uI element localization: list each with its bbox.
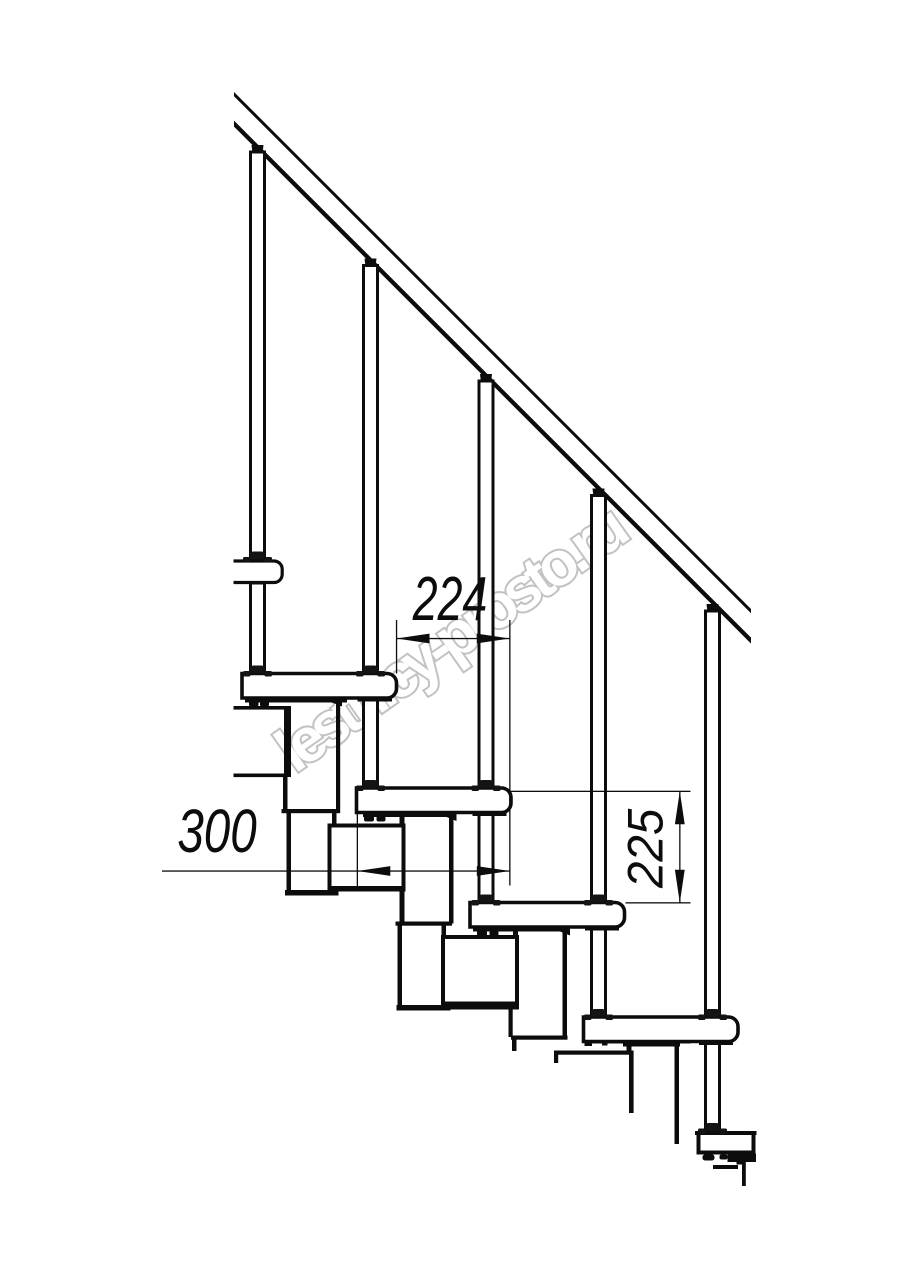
svg-text:225: 225: [618, 808, 673, 889]
svg-text:300: 300: [177, 796, 256, 865]
svg-text:224: 224: [412, 565, 487, 634]
svg-text:lestnicy-prosto.ru: lestnicy-prosto.ru: [263, 494, 638, 786]
